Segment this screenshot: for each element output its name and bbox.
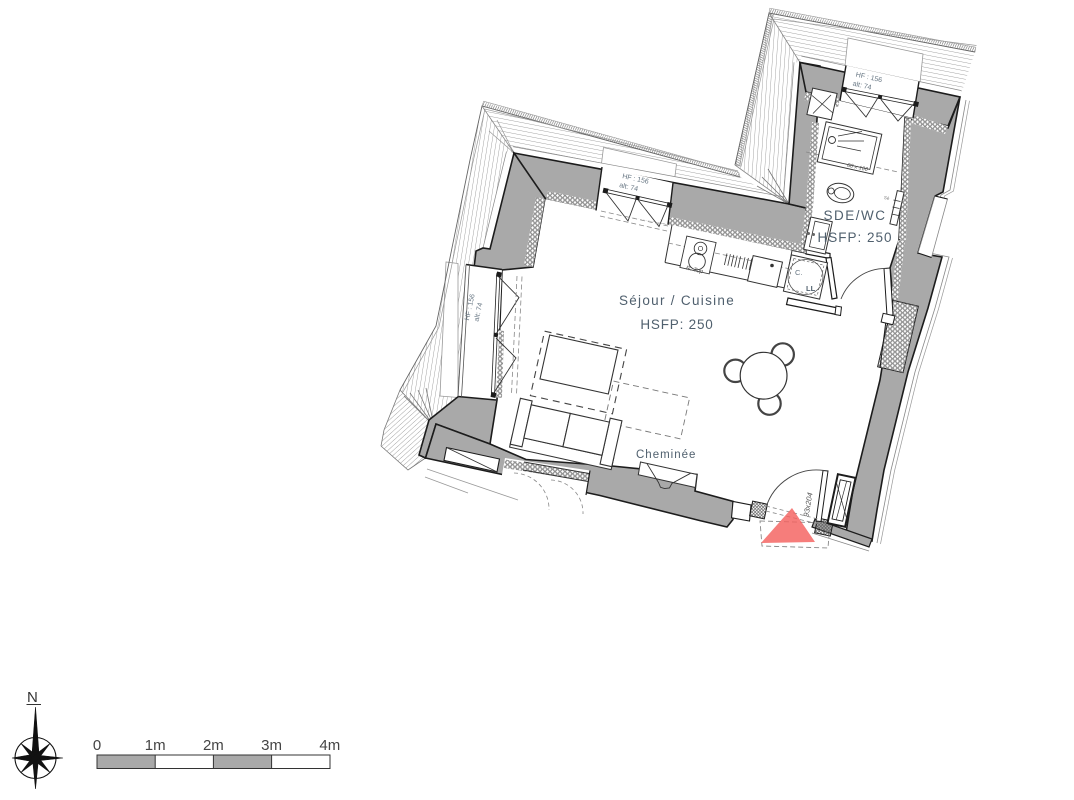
svg-text:Séjour / Cuisine: Séjour / Cuisine [619, 293, 735, 308]
svg-text:Sè: Sè [883, 195, 890, 201]
svg-text:4m: 4m [319, 737, 340, 754]
svg-text:Cheminée: Cheminée [636, 449, 696, 461]
svg-text:C.: C. [795, 268, 803, 277]
svg-text:2m: 2m [203, 737, 224, 754]
svg-text:N: N [27, 689, 38, 706]
svg-text:3m: 3m [261, 737, 282, 754]
svg-text:93x204: 93x204 [801, 492, 814, 518]
svg-text:HSFP: 250: HSFP: 250 [817, 230, 892, 245]
svg-text:SDE/WC: SDE/WC [824, 208, 887, 223]
svg-text:1m: 1m [145, 737, 166, 754]
svg-text:HSFP: 250: HSFP: 250 [640, 317, 713, 332]
svg-text:LL: LL [806, 284, 816, 293]
svg-text:0: 0 [93, 737, 101, 754]
